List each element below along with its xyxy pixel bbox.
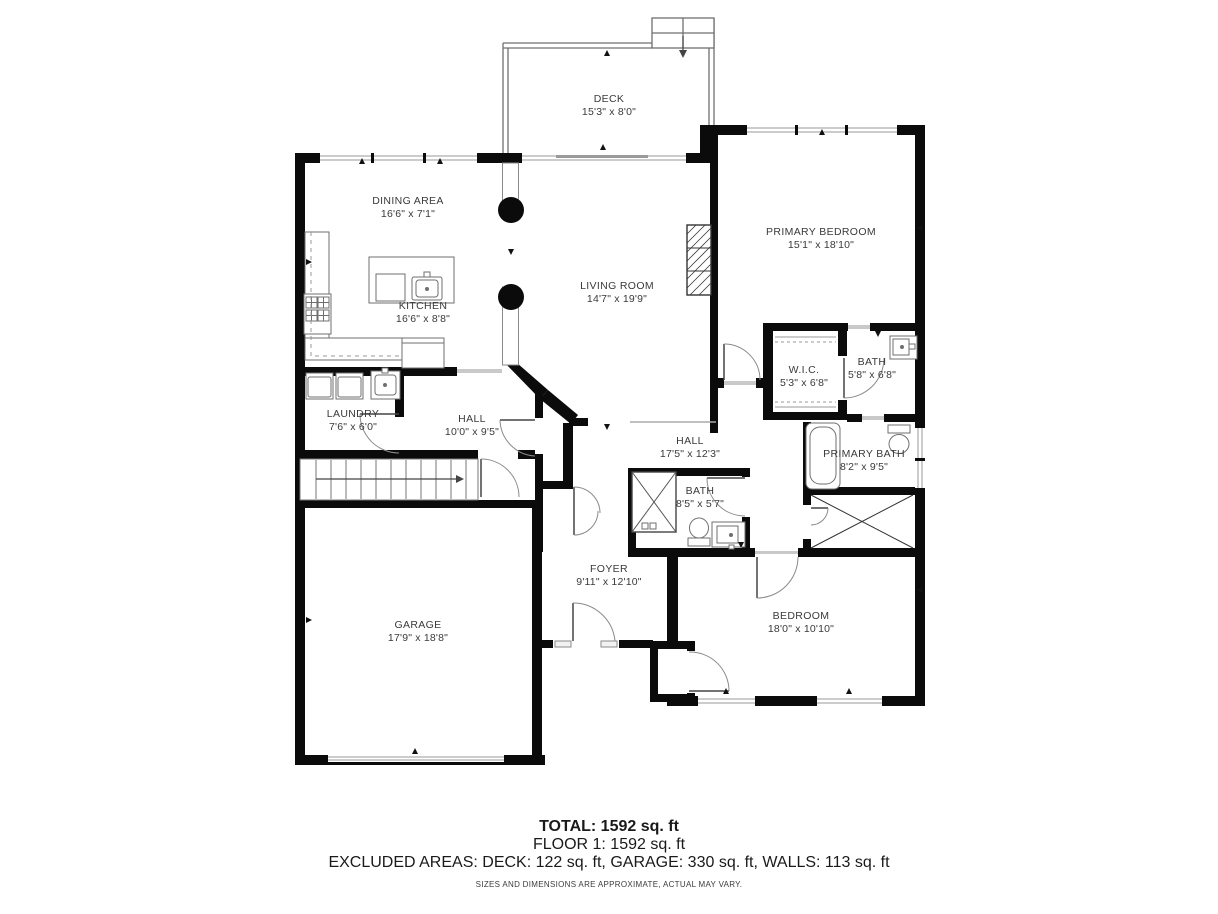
stove-icon: [304, 294, 331, 334]
room-label-wic: W.I.C. 5'3" x 6'8": [780, 364, 828, 389]
room-name: KITCHEN: [399, 300, 448, 312]
room-label-laundry: LAUNDRY 7'6" x 6'0": [327, 408, 379, 433]
dryer-icon: [336, 373, 363, 399]
total-area: TOTAL: 1592 sq. ft: [0, 818, 1218, 836]
storage-closet-door: [811, 508, 828, 525]
laundry-sink-icon: [371, 368, 400, 399]
room-label-dining-area: DINING AREA 16'6" x 7'1": [372, 195, 444, 220]
room-dims: 9'11" x 12'10": [576, 576, 641, 589]
room-name: HALL: [458, 413, 486, 425]
floor-plan-page: DECK 15'3" x 8'0" DINING AREA 16'6" x 7'…: [0, 0, 1218, 914]
room-label-deck: DECK 15'3" x 8'0": [582, 93, 636, 118]
room-dims: 15'1" x 18'10": [766, 239, 876, 252]
room-name: PRIMARY BATH: [823, 448, 905, 460]
primary-bedroom-door: [724, 344, 760, 380]
room-name: BATH: [686, 485, 715, 497]
refrigerator-icon: [402, 338, 444, 368]
structural-columns: [498, 163, 524, 365]
hall-toilet-icon: [688, 518, 710, 546]
room-name: LAUNDRY: [327, 408, 379, 420]
room-label-primary-bath: PRIMARY BATH 8'2" x 9'5": [823, 448, 905, 473]
linen-closet-x: [811, 495, 913, 548]
room-dims: 5'8" x 6'8": [848, 369, 896, 382]
room-dims: 5'3" x 6'8": [780, 377, 828, 390]
disclaimer-text: SIZES AND DIMENSIONS ARE APPROXIMATE, AC…: [0, 880, 1218, 889]
room-label-garage: GARAGE 17'9" x 18'8": [388, 619, 448, 644]
shower-icon: [632, 472, 676, 532]
room-name: DINING AREA: [372, 195, 444, 207]
room-label-foyer: FOYER 9'11" x 12'10": [576, 563, 641, 588]
garage-door: [328, 755, 504, 762]
washer-icon: [306, 373, 333, 399]
room-name: W.I.C.: [789, 364, 820, 376]
room-dims: 18'0" x 10'10": [768, 623, 834, 636]
room-dims: 16'6" x 7'1": [372, 208, 444, 221]
foyer-closet-doors: [574, 487, 600, 535]
laundry-fixtures: [306, 368, 400, 399]
room-dims: 14'7" x 19'9": [580, 293, 654, 306]
room-dims: 17'9" x 18'8": [388, 632, 448, 645]
area-summary: TOTAL: 1592 sq. ft FLOOR 1: 1592 sq. ft …: [0, 818, 1218, 889]
room-name: LIVING ROOM: [580, 280, 654, 292]
room-name: DECK: [594, 93, 625, 105]
room-dims: 15'3" x 8'0": [582, 106, 636, 119]
room-dims: 16'6" x 8'8": [396, 313, 450, 326]
room-name: BATH: [858, 356, 887, 368]
room-dims: 10'0" x 9'5": [445, 426, 499, 439]
floor-area: FLOOR 1: 1592 sq. ft: [0, 836, 1218, 854]
room-label-primary-bedroom: PRIMARY BEDROOM 15'1" x 18'10": [766, 226, 876, 251]
room-dims: 17'5" x 12'3": [660, 448, 720, 461]
room-label-hall-main: HALL 17'5" x 12'3": [660, 435, 720, 460]
stair-landing-door: [481, 459, 519, 497]
room-label-hall-small: HALL 10'0" x 9'5": [445, 413, 499, 438]
room-name: GARAGE: [394, 619, 441, 631]
room-name: BEDROOM: [773, 610, 830, 622]
deck-slider-door: [518, 153, 690, 163]
room-label-kitchen: KITCHEN 16'6" x 8'8": [396, 300, 450, 325]
excluded-areas: EXCLUDED AREAS: DECK: 122 sq. ft, GARAGE…: [0, 854, 1218, 872]
room-dims: 7'6" x 6'0": [327, 421, 379, 434]
dining-window: [320, 153, 477, 163]
room-dims: 8'2" x 9'5": [823, 461, 905, 474]
room-name: FOYER: [590, 563, 628, 575]
room-label-bath-2: BATH 8'5" x 5'7": [676, 485, 724, 510]
fireplace: [687, 225, 711, 295]
bedroom-door: [757, 557, 798, 598]
room-name: HALL: [676, 435, 704, 447]
room-label-bedroom: BEDROOM 18'0" x 10'10": [768, 610, 834, 635]
room-name: PRIMARY BEDROOM: [766, 226, 876, 238]
room-dims: 8'5" x 5'7": [676, 498, 724, 511]
primary-bath-windows: [915, 428, 925, 488]
room-label-living-room: LIVING ROOM 14'7" x 19'9": [580, 280, 654, 305]
room-label-bath: BATH 5'8" x 6'8": [848, 356, 896, 381]
bedroom-closet-interior: [658, 649, 687, 694]
floor-plan-drawing: [0, 0, 1218, 914]
